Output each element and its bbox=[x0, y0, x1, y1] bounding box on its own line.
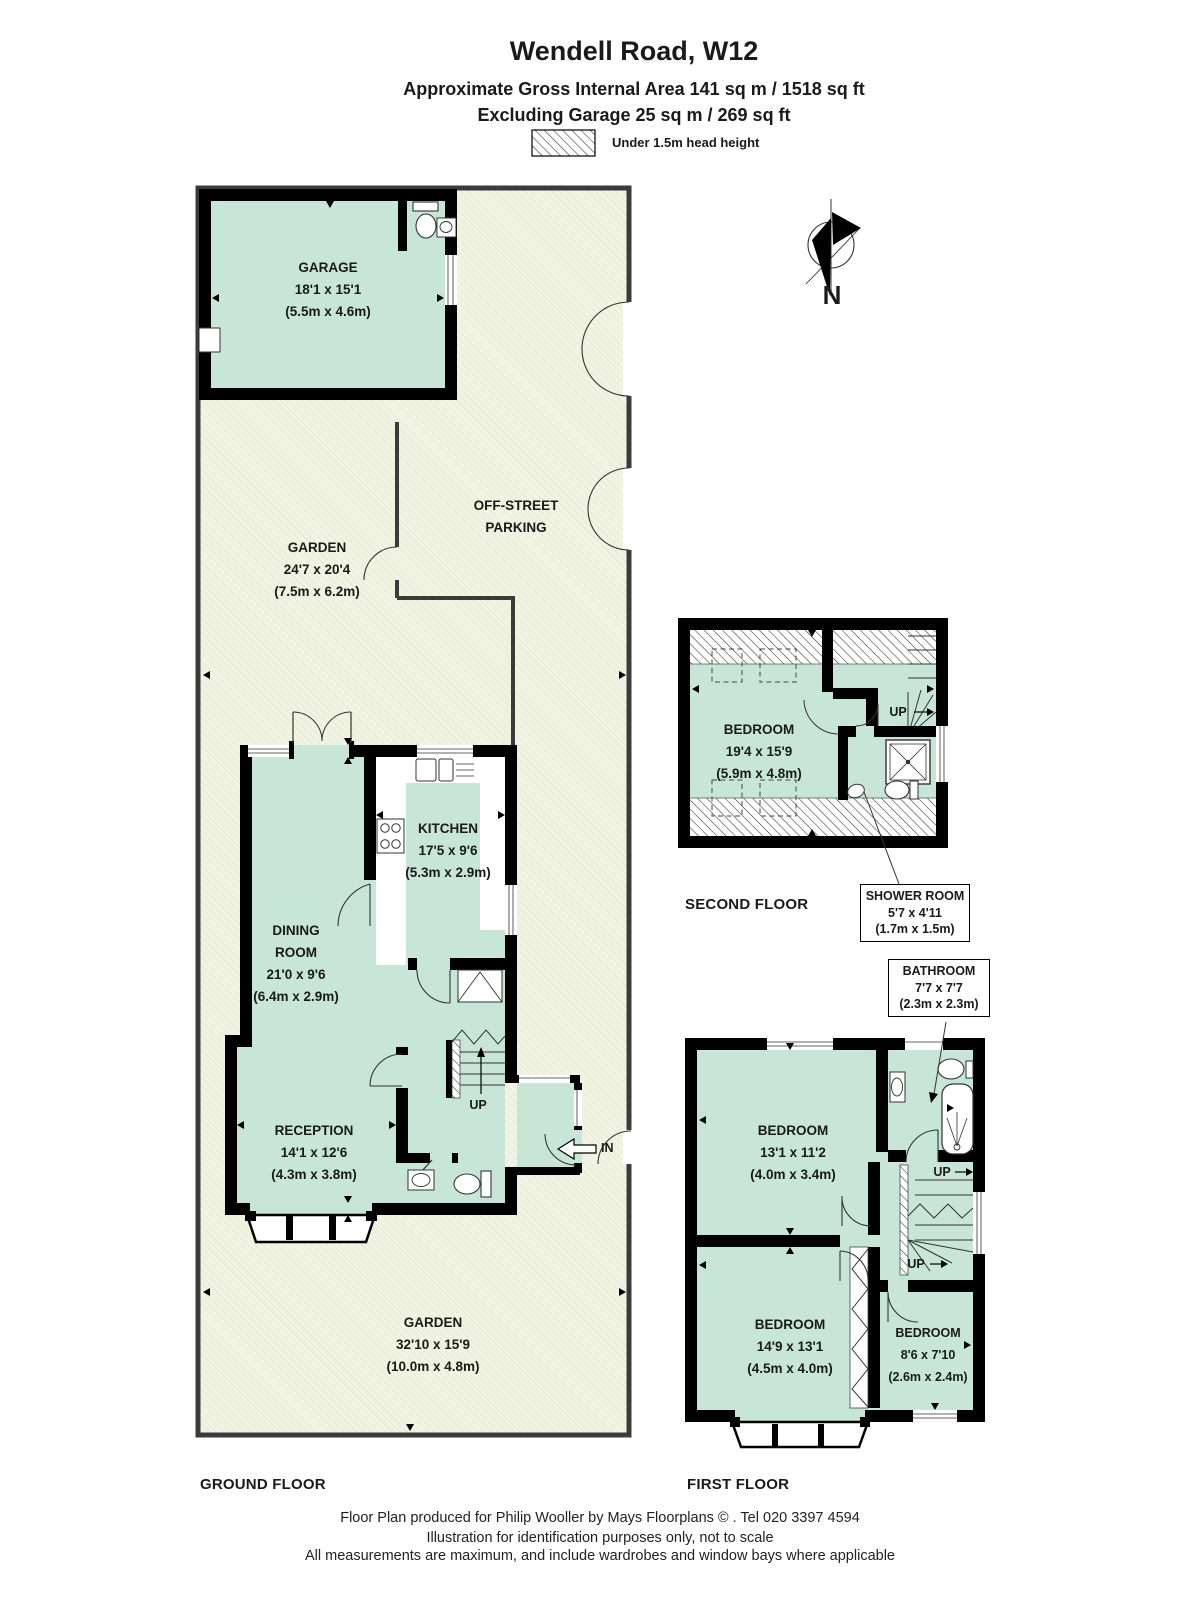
room-dims-m: (4.5m x 4.0m) bbox=[747, 1358, 833, 1380]
sink-icon bbox=[408, 1170, 434, 1190]
excluding-garage-line: Excluding Garage 25 sq m / 269 sq ft bbox=[477, 105, 790, 126]
sink-icon bbox=[890, 1072, 905, 1102]
room-dims-ft: 5'7 x 4'11 bbox=[863, 905, 967, 922]
shower-room-callout: SHOWER ROOM 5'7 x 4'11 (1.7m x 1.5m) bbox=[860, 884, 970, 942]
room-name: BEDROOM bbox=[716, 719, 802, 741]
room-dims-ft: 18'1 x 15'1 bbox=[285, 279, 371, 301]
room-name: ROOM bbox=[253, 942, 339, 964]
dining-room-label: DINING ROOM 21'0 x 9'6 (6.4m x 2.9m) bbox=[253, 920, 339, 1008]
bathroom-callout: BATHROOM 7'7 x 7'7 (2.3m x 2.3m) bbox=[888, 959, 990, 1017]
first-floor-label: FIRST FLOOR bbox=[687, 1476, 789, 1493]
second-floor-label: SECOND FLOOR bbox=[685, 896, 808, 913]
room-name: KITCHEN bbox=[405, 818, 491, 840]
floorplan-graphics bbox=[0, 0, 1200, 1600]
room-dims-ft: 14'9 x 13'1 bbox=[747, 1336, 833, 1358]
room-dims-ft: 8'6 x 7'10 bbox=[888, 1344, 967, 1366]
room-dims-ft: 21'0 x 9'6 bbox=[253, 964, 339, 986]
footer-line-2: Illustration for identification purposes… bbox=[0, 1530, 1200, 1546]
room-dims-ft: 7'7 x 7'7 bbox=[891, 980, 987, 997]
room-dims-m: (5.9m x 4.8m) bbox=[716, 763, 802, 785]
bath-icon bbox=[942, 1084, 973, 1154]
room-name: BATHROOM bbox=[891, 963, 987, 980]
parking-label: OFF-STREET PARKING bbox=[474, 495, 559, 539]
room-dims-m: (2.3m x 2.3m) bbox=[891, 996, 987, 1013]
bay-window bbox=[730, 1410, 870, 1447]
garden-lower-label: GARDEN 32'10 x 15'9 (10.0m x 4.8m) bbox=[386, 1312, 479, 1378]
room-dims-ft: 32'10 x 15'9 bbox=[386, 1334, 479, 1356]
footer-line-3: All measurements are maximum, and includ… bbox=[0, 1548, 1200, 1564]
room-dims-m: (5.3m x 2.9m) bbox=[405, 862, 491, 884]
legend-label: Under 1.5m head height bbox=[612, 135, 759, 150]
room-name: BEDROOM bbox=[888, 1322, 967, 1344]
room-name: PARKING bbox=[474, 517, 559, 539]
bedroom-middle-label: BEDROOM 14'9 x 13'1 (4.5m x 4.0m) bbox=[747, 1314, 833, 1380]
room-name: OFF-STREET bbox=[474, 495, 559, 517]
room-dims-m: (4.0m x 3.4m) bbox=[750, 1164, 836, 1186]
room-dims-m: (2.6m x 2.4m) bbox=[888, 1366, 967, 1388]
room-dims-ft: 17'5 x 9'6 bbox=[405, 840, 491, 862]
in-label: IN bbox=[601, 1141, 614, 1155]
toilet-icon bbox=[938, 1059, 973, 1079]
room-dims-m: (7.5m x 6.2m) bbox=[274, 581, 360, 603]
room-name: BEDROOM bbox=[747, 1314, 833, 1336]
room-name: DINING bbox=[253, 920, 339, 942]
up-label-ground: UP bbox=[469, 1098, 486, 1112]
bedroom-second-label: BEDROOM 19'4 x 15'9 (5.9m x 4.8m) bbox=[716, 719, 802, 785]
bay-window bbox=[245, 1203, 377, 1242]
room-dims-ft: 24'7 x 20'4 bbox=[274, 559, 360, 581]
room-dims-m: (6.4m x 2.9m) bbox=[253, 986, 339, 1008]
room-name: BEDROOM bbox=[750, 1120, 836, 1142]
room-name: RECEPTION bbox=[271, 1120, 357, 1142]
bedroom-front-label: BEDROOM 13'1 x 11'2 (4.0m x 3.4m) bbox=[750, 1120, 836, 1186]
page-title: Wendell Road, W12 bbox=[510, 36, 759, 67]
room-dims-ft: 14'1 x 12'6 bbox=[271, 1142, 357, 1164]
room-dims-m: (4.3m x 3.8m) bbox=[271, 1164, 357, 1186]
garden-upper-label: GARDEN 24'7 x 20'4 (7.5m x 6.2m) bbox=[274, 537, 360, 603]
room-dims-ft: 19'4 x 15'9 bbox=[716, 741, 802, 763]
room-name: SHOWER ROOM bbox=[863, 888, 967, 905]
room-dims-m: (10.0m x 4.8m) bbox=[386, 1356, 479, 1378]
up-label-second: UP bbox=[889, 705, 906, 719]
bedroom-back-label: BEDROOM 8'6 x 7'10 (2.6m x 2.4m) bbox=[888, 1322, 967, 1388]
room-name: GARDEN bbox=[274, 537, 360, 559]
floorplan-page: Wendell Road, W12 Approximate Gross Inte… bbox=[0, 0, 1200, 1600]
gross-area-line: Approximate Gross Internal Area 141 sq m… bbox=[403, 79, 865, 100]
cupboard bbox=[458, 970, 502, 1002]
compass-north-label: N bbox=[823, 280, 842, 311]
up-label-first-2: UP bbox=[907, 1257, 924, 1271]
toilet-icon bbox=[885, 781, 918, 799]
hob-icon bbox=[377, 819, 404, 853]
room-dims-ft: 13'1 x 11'2 bbox=[750, 1142, 836, 1164]
up-label-first-1: UP bbox=[933, 1165, 950, 1179]
room-dims-m: (1.7m x 1.5m) bbox=[863, 921, 967, 938]
garage-label: GARAGE 18'1 x 15'1 (5.5m x 4.6m) bbox=[285, 257, 371, 323]
ground-floor-plan bbox=[198, 188, 635, 1435]
reception-label: RECEPTION 14'1 x 12'6 (4.3m x 3.8m) bbox=[271, 1120, 357, 1186]
legend-hatch-swatch bbox=[532, 130, 595, 156]
room-name: GARDEN bbox=[386, 1312, 479, 1334]
room-dims-m: (5.5m x 4.6m) bbox=[285, 301, 371, 323]
kitchen-label: KITCHEN 17'5 x 9'6 (5.3m x 2.9m) bbox=[405, 818, 491, 884]
shower-icon bbox=[886, 740, 930, 784]
room-name: GARAGE bbox=[285, 257, 371, 279]
footer-line-1: Floor Plan produced for Philip Wooller b… bbox=[0, 1510, 1200, 1526]
porch-floor bbox=[517, 1083, 574, 1167]
ground-floor-label: GROUND FLOOR bbox=[200, 1476, 326, 1493]
sink-icon bbox=[437, 218, 456, 237]
wardrobe bbox=[850, 1247, 868, 1408]
